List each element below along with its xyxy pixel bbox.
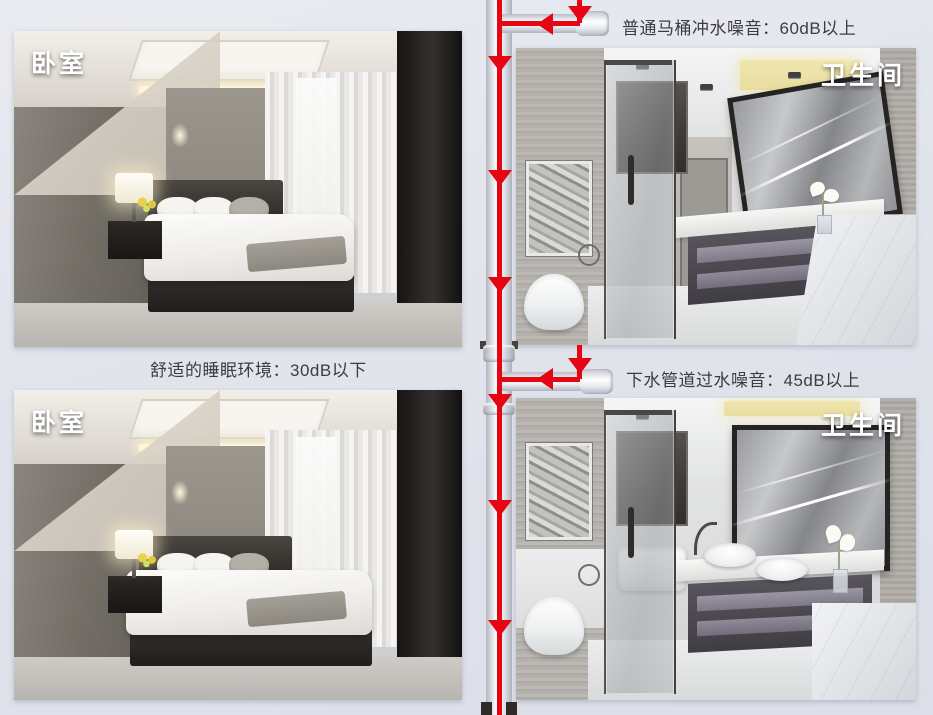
nightstand bbox=[108, 576, 162, 613]
flower-vase bbox=[833, 569, 848, 594]
bathroom-photo-top: 卫生间 bbox=[516, 48, 916, 345]
towel-ring bbox=[578, 244, 600, 266]
bedroom-label: 卧室 bbox=[31, 44, 87, 80]
flow-arrow-down-icon bbox=[488, 620, 512, 636]
wardrobe bbox=[397, 31, 462, 334]
infographic-canvas: 卧室 卧室 bbox=[0, 0, 933, 715]
towel-ring bbox=[578, 564, 600, 586]
flower-stem bbox=[838, 541, 840, 572]
flowers bbox=[135, 551, 160, 568]
flow-arrow-left-icon bbox=[537, 13, 553, 35]
flower-stem bbox=[822, 194, 824, 217]
flow-arrow-down-icon bbox=[488, 500, 512, 516]
shower-door-frame bbox=[604, 60, 672, 65]
marble-counter-corner bbox=[812, 603, 916, 700]
calla-lilies bbox=[808, 182, 840, 232]
flow-arrow-down-icon bbox=[568, 6, 592, 22]
wall-art bbox=[526, 443, 592, 540]
flow-arrow-down-icon bbox=[568, 358, 592, 374]
vessel-sink bbox=[756, 557, 808, 581]
shower-glass-door bbox=[604, 60, 676, 339]
shower-door-handle bbox=[628, 507, 634, 558]
bedroom-photo-bottom: 卧室 bbox=[14, 390, 462, 700]
bathroom-scene bbox=[516, 398, 916, 700]
flow-arrow-down-icon bbox=[488, 394, 512, 410]
vanity-mirror bbox=[732, 425, 890, 571]
shower-door-frame bbox=[604, 410, 672, 415]
annotation-drain-flow-noise: 下水管道过水噪音：45dB以上 bbox=[626, 366, 860, 391]
flow-line-main bbox=[497, 0, 502, 715]
flower-petal bbox=[823, 187, 840, 203]
calla-lilies bbox=[824, 525, 856, 591]
nightstand bbox=[108, 221, 162, 259]
bathroom-label: 卫生间 bbox=[821, 406, 905, 442]
shower-glass-door bbox=[604, 410, 676, 694]
bedroom-photo-top: 卧室 bbox=[14, 31, 462, 347]
wall-sconce-icon bbox=[171, 123, 189, 148]
flowers bbox=[135, 195, 160, 212]
annotation-sleep-environment: 舒适的睡眠环境：30dB以下 bbox=[150, 356, 367, 381]
wall-sconce-icon bbox=[171, 480, 189, 505]
flow-arrow-down-icon bbox=[488, 277, 512, 293]
vessel-sink bbox=[704, 543, 756, 567]
toilet bbox=[524, 597, 584, 654]
flower-vase bbox=[817, 215, 832, 234]
bathroom-label: 卫生间 bbox=[821, 56, 905, 92]
flow-arrow-down-icon bbox=[488, 170, 512, 186]
wall-art bbox=[526, 161, 592, 256]
shower-door-handle bbox=[628, 155, 634, 205]
flow-arrow-down-icon bbox=[488, 56, 512, 72]
pipe-clamp bbox=[481, 702, 492, 715]
annotation-toilet-flush-noise: 普通马桶冲水噪音：60dB以上 bbox=[622, 14, 856, 39]
bathroom-scene bbox=[516, 48, 916, 345]
bathroom-photo-bottom: 卫生间 bbox=[516, 398, 916, 700]
wardrobe bbox=[397, 390, 462, 688]
pipe-clamp bbox=[506, 702, 517, 715]
bedroom-label: 卧室 bbox=[31, 403, 87, 439]
spotlight-icon bbox=[700, 84, 713, 91]
spotlight-icon bbox=[788, 72, 801, 79]
flow-arrow-left-icon bbox=[537, 368, 553, 390]
